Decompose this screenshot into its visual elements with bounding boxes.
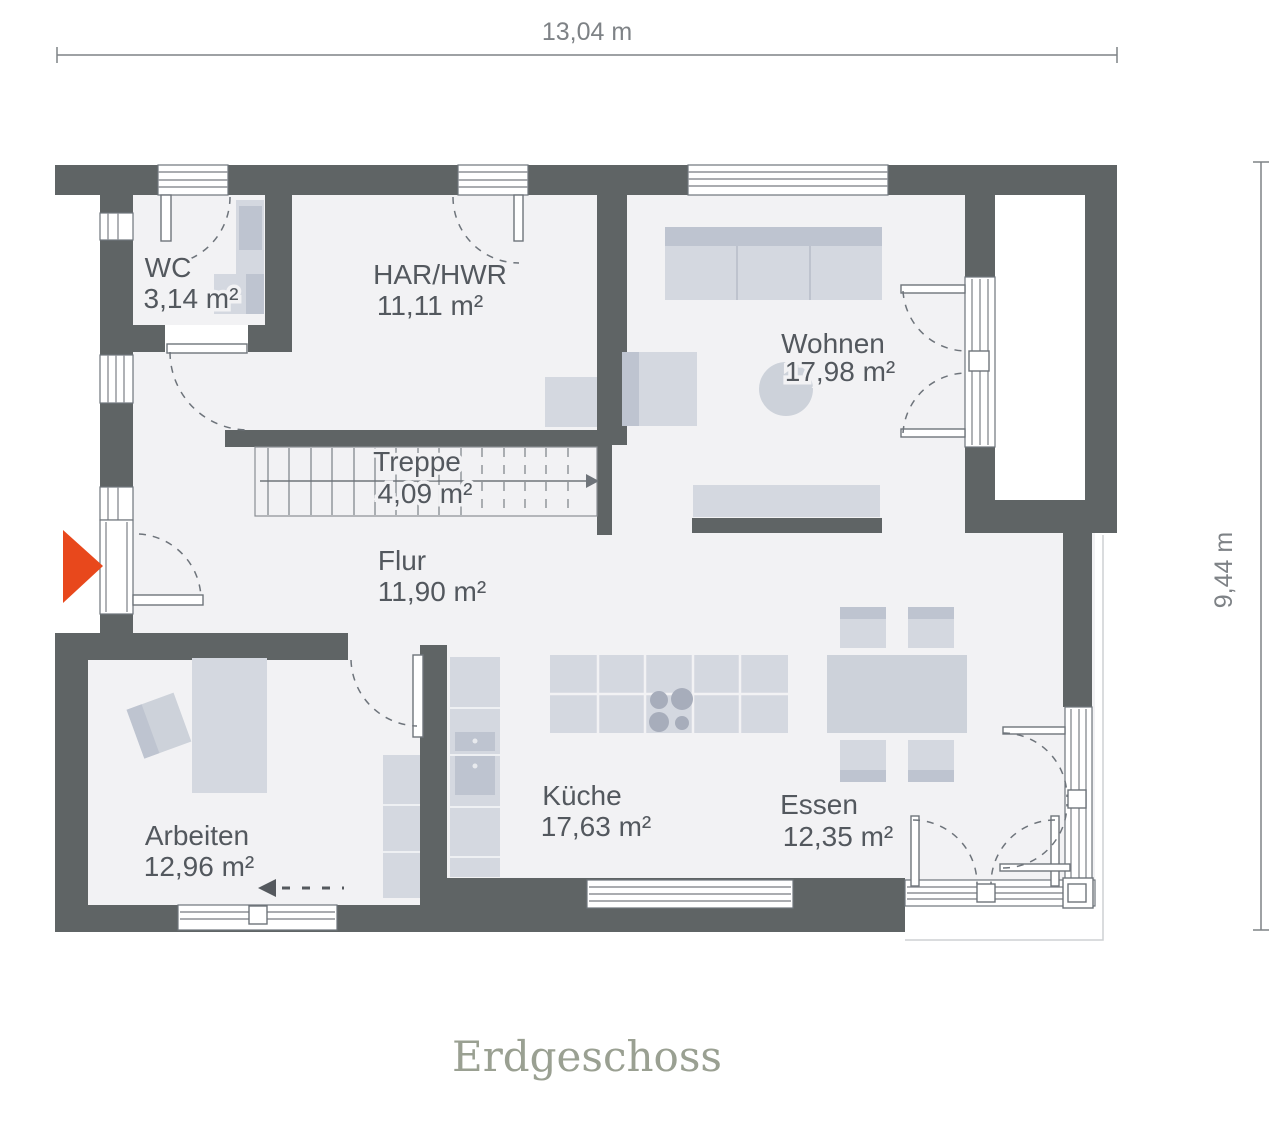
door-handle — [969, 351, 989, 371]
wall-flur-arbeiten — [55, 633, 348, 660]
dimension-top: 13,04 m — [57, 18, 1117, 63]
room-area-wohnen: 17,98 m² — [785, 356, 896, 387]
oven — [455, 756, 495, 795]
room-label-arbeiten: Arbeiten — [145, 820, 249, 851]
door-leaf — [1003, 727, 1065, 734]
wall-mid-east — [965, 500, 1117, 533]
dining-chair-back — [840, 607, 886, 619]
door-handle — [1068, 790, 1086, 808]
dining-chair-back — [908, 607, 954, 619]
entrance-arrow-icon — [63, 530, 103, 603]
room-area-essen: 12,35 m² — [783, 821, 894, 852]
sideboard — [693, 485, 880, 517]
door-leaf — [1051, 816, 1059, 886]
room-area-kueche: 17,63 m² — [541, 811, 652, 842]
wall-essen-east — [1063, 533, 1092, 707]
room-label-flur: Flur — [378, 545, 426, 576]
window-west-flur2 — [100, 487, 133, 520]
wc-sink — [239, 206, 262, 250]
window-arbeiten — [178, 905, 337, 930]
wall-east-outer — [1085, 165, 1117, 500]
wall-arbeiten-kueche — [420, 645, 447, 905]
sofa-back — [665, 227, 882, 246]
window-handle — [249, 906, 267, 924]
door-handle — [1068, 884, 1086, 902]
wardrobe — [383, 755, 420, 898]
room-label-wc: WC — [145, 252, 192, 283]
door-leaf — [413, 655, 423, 737]
floor-title: Erdgeschoss — [452, 1032, 722, 1081]
room-area-flur: 11,90 m² — [378, 576, 486, 607]
desk — [192, 658, 267, 793]
cooktop-burner — [649, 712, 669, 732]
wall-stair-north — [225, 430, 597, 447]
window-wohnen — [688, 165, 888, 195]
armchair-back — [622, 352, 639, 426]
oven-knob — [473, 764, 478, 769]
door-leaf — [901, 429, 965, 437]
wall-wc-east — [265, 195, 292, 352]
door-leaf — [133, 595, 203, 605]
room-area-har: 11,11 m² — [377, 290, 483, 321]
room-area-wc: 3,14 m² — [144, 283, 239, 314]
wall-west-lower — [55, 645, 88, 932]
door-handle — [977, 884, 995, 902]
room-label-wohnen: Wohnen — [781, 328, 885, 359]
door-leaf — [901, 285, 965, 293]
wall-stair-east — [597, 445, 612, 535]
wall-wohnen-south — [692, 518, 882, 533]
oven-knob — [473, 739, 478, 744]
room-label-kueche: Küche — [542, 780, 621, 811]
window-casement — [514, 195, 523, 241]
armchair — [639, 352, 697, 426]
floor-plan-drawing: 13,04 m 9,44 m — [0, 0, 1280, 1148]
har-appliance — [545, 377, 597, 427]
room-label-treppe: Treppe — [373, 446, 461, 477]
cooktop-burner — [650, 691, 668, 709]
window-west-flur1 — [100, 355, 133, 403]
dimension-width-label: 13,04 m — [542, 18, 632, 46]
dining-chair-back — [908, 770, 954, 782]
room-label-har: HAR/HWR — [373, 259, 507, 290]
room-area-arbeiten: 12,96 m² — [144, 851, 255, 882]
sofa — [665, 246, 882, 300]
window-casement — [161, 195, 171, 241]
room-label-essen: Essen — [780, 789, 858, 820]
cooktop-burner — [671, 688, 693, 710]
dimension-right: 9,44 m — [1210, 162, 1269, 930]
room-area-treppe: 4,09 m² — [378, 478, 473, 509]
dining-chair-back — [840, 770, 886, 782]
dimension-height-label: 9,44 m — [1210, 532, 1238, 608]
window-west-wc — [100, 213, 133, 240]
floor-plan-page: 13,04 m 9,44 m — [0, 0, 1280, 1148]
window-kueche — [587, 880, 793, 908]
door-leaf — [911, 816, 919, 886]
dining-table — [827, 655, 967, 733]
wc-cistern — [246, 274, 264, 314]
door-leaf — [167, 344, 247, 353]
door-leaf — [1000, 864, 1070, 871]
cooktop-burner — [675, 716, 689, 730]
